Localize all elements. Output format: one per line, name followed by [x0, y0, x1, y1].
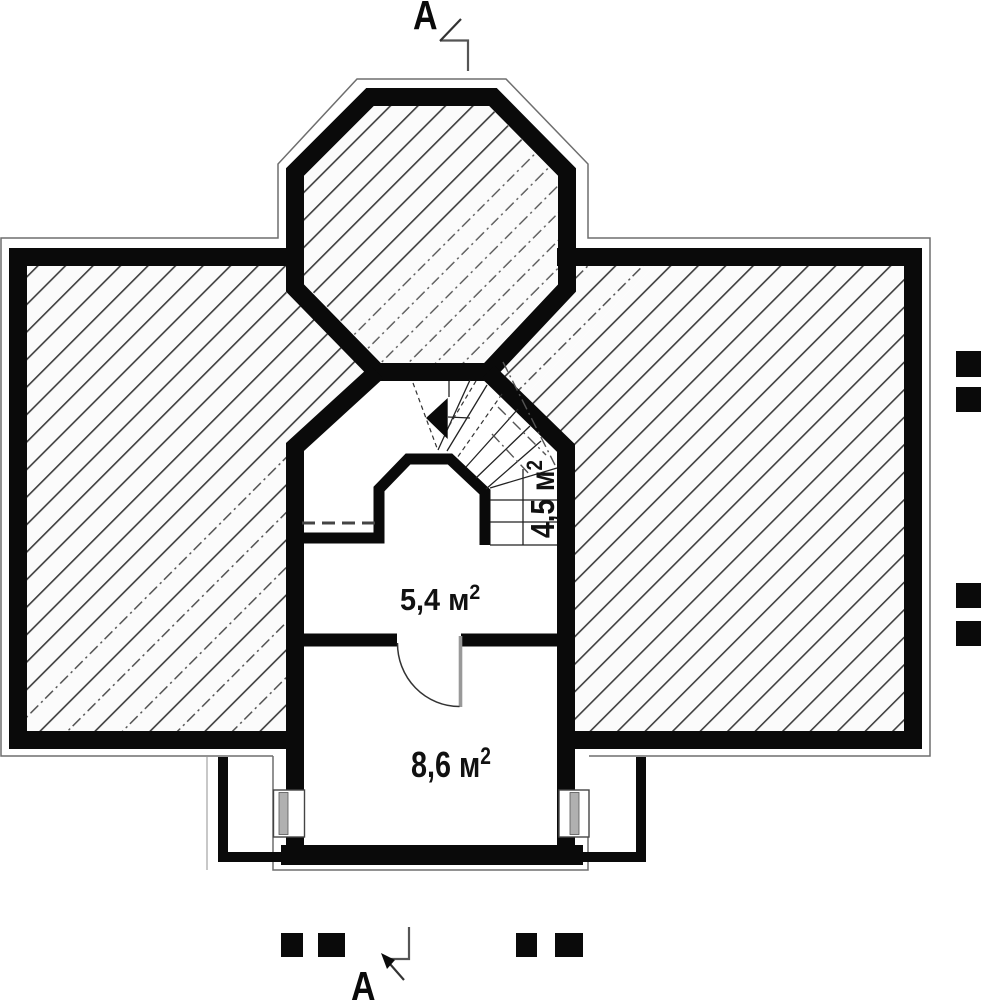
svg-text:8,6 м2: 8,6 м2 — [411, 742, 491, 785]
svg-text:5,4 м2: 5,4 м2 — [400, 581, 480, 617]
svg-text:4,5 м2: 4,5 м2 — [524, 460, 562, 538]
svg-text:A: A — [413, 0, 438, 38]
svg-text:A: A — [351, 963, 376, 1000]
